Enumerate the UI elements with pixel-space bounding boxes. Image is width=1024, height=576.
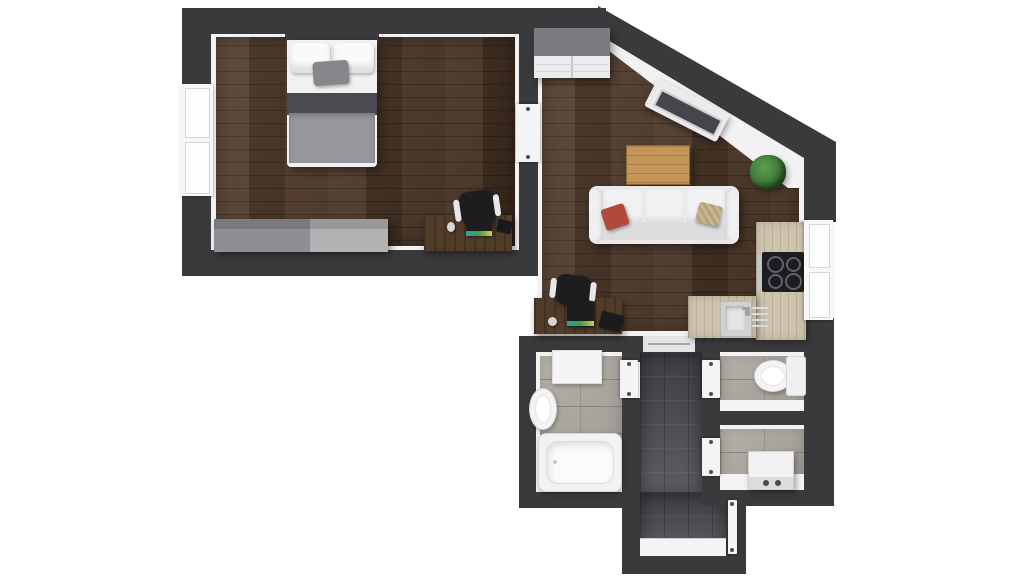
bed-gray-cushion <box>312 60 350 86</box>
wardrobe-front <box>534 56 610 78</box>
burner-4 <box>785 273 802 290</box>
window-pane-bottom <box>809 272 830 318</box>
burner-3 <box>768 274 783 289</box>
door-hinge-bottom <box>526 155 530 159</box>
bed-dark-blanket-stripe <box>287 93 377 115</box>
washbasin <box>529 388 557 430</box>
toilet-bowl-inner <box>761 366 785 386</box>
wall-hall-left-lower <box>622 398 640 494</box>
washing-machine-front <box>749 477 793 489</box>
wardrobe-front-divider <box>571 56 573 78</box>
window-pane-top <box>185 88 210 138</box>
bathroom-door <box>620 360 638 398</box>
bedroom-laptop <box>466 219 492 236</box>
washing-machine <box>748 451 794 490</box>
bedroom-desk-item <box>496 219 513 235</box>
drainer-groove-1 <box>752 307 768 309</box>
door-hinge-bottom <box>730 548 734 552</box>
toilet-tank <box>786 356 806 396</box>
threshold-rail <box>648 343 690 345</box>
cooktop <box>762 252 804 292</box>
shower-tray <box>552 350 602 384</box>
bedroom-window <box>180 84 213 196</box>
wardrobe-drawer-line-1 <box>536 64 608 65</box>
plant <box>750 155 786 189</box>
wall-right-rooms-right <box>804 345 834 506</box>
door-hinge-top <box>627 362 631 366</box>
wardrobe-drawer-line-2 <box>536 71 608 72</box>
laptop-screen-stripe <box>567 321 594 326</box>
bed-gray-throw <box>289 113 375 163</box>
door-hinge-top <box>709 440 713 444</box>
wc-door <box>702 360 720 398</box>
bathtub <box>538 433 622 492</box>
dresser <box>214 219 388 252</box>
utility-door <box>702 438 720 476</box>
sofa-cushion-2 <box>645 190 684 223</box>
laptop-screen-stripe <box>466 231 492 236</box>
bathtub-drain <box>553 460 557 464</box>
door-hinge-top <box>526 107 530 111</box>
drainer-groove-3 <box>752 319 768 321</box>
wall-bedroom-living-lower <box>519 160 538 252</box>
diagonal-wall-group <box>0 0 1024 576</box>
bedroom-door <box>516 104 540 162</box>
burner-2 <box>786 257 801 272</box>
wardrobe <box>534 28 610 78</box>
door-hinge-bottom <box>709 392 713 396</box>
drainer-groove-2 <box>752 313 768 315</box>
washbasin-inner <box>535 395 551 423</box>
window-pane-bottom <box>185 142 210 194</box>
kitchen-window <box>804 220 833 320</box>
wall-bedroom-bottom <box>182 250 538 276</box>
drainer-groove-4 <box>752 325 768 327</box>
sofa-armrest-right <box>725 188 739 242</box>
coffee-table <box>626 145 690 185</box>
bedroom-mouse <box>447 222 455 232</box>
double-bed <box>285 33 379 167</box>
wall-left-upper <box>182 8 211 88</box>
oven-handle <box>757 255 761 291</box>
wardrobe-top <box>534 28 610 56</box>
living-mouse <box>548 317 557 326</box>
door-hinge-bottom <box>627 392 631 396</box>
dresser-top-edge <box>214 219 388 229</box>
floor-plan <box>0 0 1024 576</box>
washing-machine-knob-1 <box>763 480 769 486</box>
kitchen-sink <box>720 301 752 337</box>
washing-machine-knob-2 <box>775 480 781 486</box>
faucet-head <box>745 309 750 316</box>
sofa <box>589 186 739 244</box>
door-hinge-bottom <box>709 470 713 474</box>
wall-wc-utility-divider <box>702 411 806 425</box>
hall-doorway-threshold <box>643 336 695 352</box>
entry-door <box>728 500 737 554</box>
burner-1 <box>767 256 784 273</box>
living-laptop <box>567 301 594 327</box>
door-hinge-top <box>730 502 734 506</box>
door-hinge-top <box>709 362 713 366</box>
window-pane-top <box>809 224 830 268</box>
